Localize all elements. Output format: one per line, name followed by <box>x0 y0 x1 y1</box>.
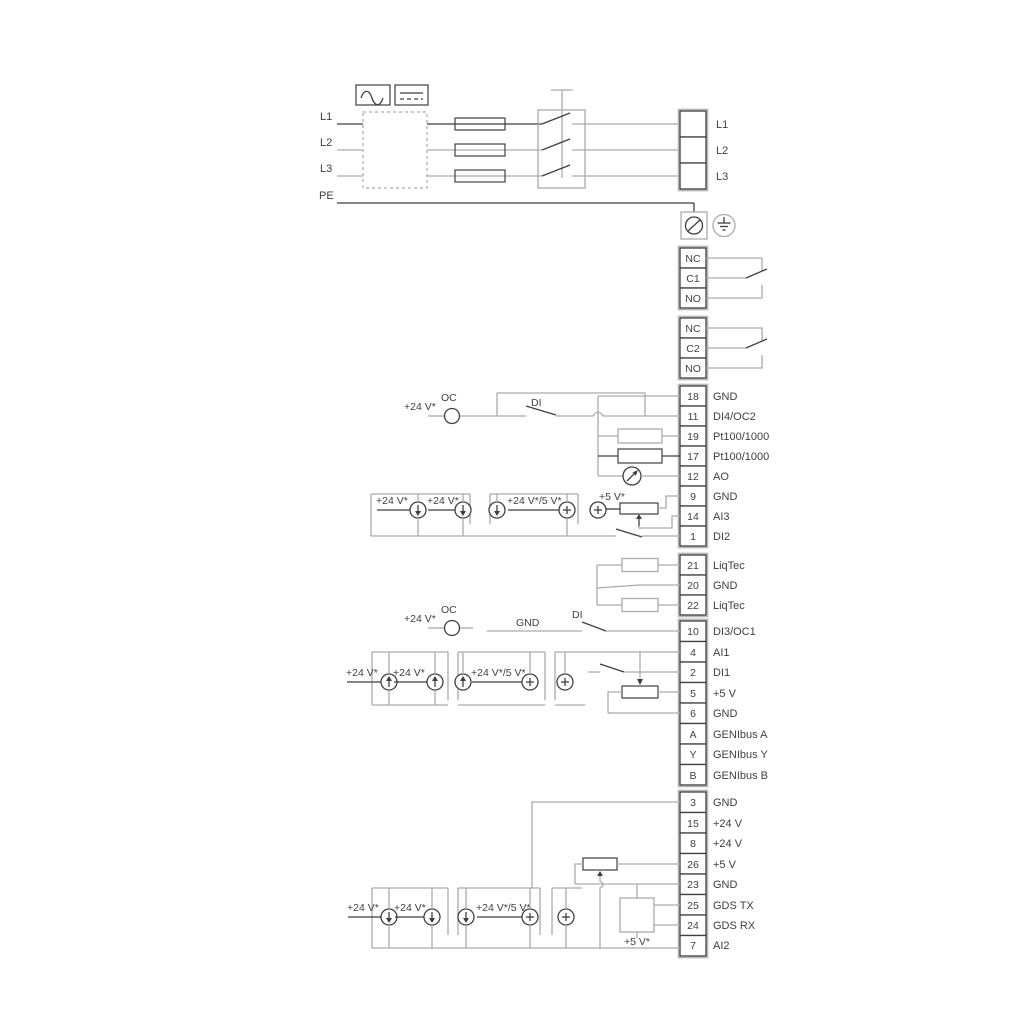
label-gds-rx: GDS RX <box>713 920 756 932</box>
current-source-symbol <box>427 674 443 690</box>
label-gnd-20: GND <box>713 580 738 592</box>
mains-terminal-block <box>679 110 708 191</box>
dc-symbol-icon <box>395 85 428 105</box>
terminal-b: B <box>689 770 696 782</box>
ac-symbol-icon <box>356 85 390 105</box>
terminal-25: 25 <box>687 900 699 912</box>
relay1-contact-blade <box>746 269 767 278</box>
label-liqtec-22: LiqTec <box>713 600 745 612</box>
pe-ground <box>337 203 735 239</box>
relay1-block: NC C1 NO <box>679 247 768 310</box>
relay2-block: NC C2 NO <box>679 317 768 380</box>
oc2-open-collector <box>445 409 460 424</box>
ai3-potentiometer <box>620 503 658 514</box>
di1-switch-blade <box>600 664 624 672</box>
current-sink-symbol <box>489 502 505 518</box>
gds-5v-label: +5 V* <box>624 936 650 948</box>
terminal-22: 22 <box>687 600 699 612</box>
terminal-3: 3 <box>690 797 696 809</box>
terminal-label-l3: L3 <box>716 171 728 183</box>
ai2-24v-label-2: +24 V* <box>394 902 426 914</box>
terminal-strip-3: 10 4 2 5 6 A Y B DI3/OC1 AI1 DI1 +5 V GN… <box>679 620 769 787</box>
label-di1: DI1 <box>713 667 730 679</box>
label-gnd-23: GND <box>713 879 738 891</box>
ai3-5v-label: +5 V* <box>599 491 625 503</box>
gds-sensor-box <box>620 898 654 932</box>
terminal-10: 10 <box>687 626 699 638</box>
pt100-sensor-19 <box>618 429 662 443</box>
label-di4-oc2: DI4/OC2 <box>713 411 756 423</box>
terminal-label-l2: L2 <box>716 145 728 157</box>
terminal-14: 14 <box>687 511 699 523</box>
oc1-di-circuit: +24 V* OC GND DI <box>404 604 680 636</box>
ao-meter-icon <box>623 467 641 485</box>
voltage-source-symbol <box>558 909 574 925</box>
terminal-18: 18 <box>687 391 699 403</box>
phase-label-pe: PE <box>319 190 334 202</box>
oc2-di-circuit: +24 V* OC DI <box>404 392 680 485</box>
voltage-source-symbol <box>522 674 538 690</box>
label-ai3: AI3 <box>713 511 730 523</box>
label-ao: AO <box>713 471 729 483</box>
ai2-potentiometer <box>583 858 617 870</box>
phase-label-l2: L2 <box>320 137 332 149</box>
main-switch <box>538 90 585 188</box>
label-pt100-17: Pt100/1000 <box>713 451 769 463</box>
ai1-potentiometer <box>622 686 658 698</box>
oc2-di-label: DI <box>531 397 542 409</box>
relay2-c2: C2 <box>686 343 700 355</box>
liqtec-sensor-1 <box>622 559 658 572</box>
terminal-12: 12 <box>687 471 699 483</box>
ai3-24v5v-label: +24 V*/5 V* <box>507 495 562 507</box>
terminal-8: 8 <box>690 838 696 850</box>
voltage-source-symbol <box>522 909 538 925</box>
wiper-arrow <box>637 679 643 685</box>
current-sink-symbol <box>410 502 426 518</box>
wiper-arrow <box>597 871 603 876</box>
terminal-17: 17 <box>687 451 699 463</box>
label-genibus-y: GENIbus Y <box>713 749 768 761</box>
converter-dashed-box <box>363 112 427 188</box>
voltage-source-symbol <box>559 502 575 518</box>
liqtec-strip: 21 20 22 LiqTec GND LiqTec <box>597 554 745 617</box>
wiring-diagram: L1 L2 L3 PE <box>0 0 1024 1024</box>
oc2-oc-label: OC <box>441 392 457 404</box>
label-genibus-b: GENIbus B <box>713 770 768 782</box>
wiper-arrow <box>636 514 642 519</box>
label-ai1: AI1 <box>713 647 730 659</box>
current-sink-symbol <box>424 909 440 925</box>
terminal-6: 6 <box>690 708 696 720</box>
label-pt100-19: Pt100/1000 <box>713 431 769 443</box>
label-gds-tx: GDS TX <box>713 900 754 912</box>
ai2-gds-circuit: +5 V* +24 V* +24 V* +24 V*/5 V* <box>347 802 680 948</box>
oc1-gnd-label: GND <box>516 617 540 629</box>
terminal-20: 20 <box>687 580 699 592</box>
screw-terminal-icon <box>681 212 707 239</box>
relay2-no: NO <box>685 363 701 375</box>
label-genibus-a: GENIbus A <box>713 729 768 741</box>
wiring-diagram-page: L1 L2 L3 PE <box>0 0 1024 1024</box>
label-gnd-9: GND <box>713 491 738 503</box>
di3-switch-blade <box>582 622 606 631</box>
oc2-24v-label: +24 V* <box>404 401 436 413</box>
ai1-24v-label-1: +24 V* <box>346 667 378 679</box>
phase-label-l3: L3 <box>320 163 332 175</box>
ai3-24v-label-2: +24 V* <box>427 495 459 507</box>
terminal-1: 1 <box>690 531 696 543</box>
terminal-label-l1: L1 <box>716 119 728 131</box>
label-liqtec-21: LiqTec <box>713 560 745 572</box>
terminal-9: 9 <box>690 491 696 503</box>
ai1-24v-label-2: +24 V* <box>393 667 425 679</box>
label-gnd-3: GND <box>713 797 738 809</box>
terminal-a: A <box>689 729 696 741</box>
current-sink-symbol <box>458 909 474 925</box>
label-gnd-18: GND <box>713 391 738 403</box>
terminal-y: Y <box>689 749 696 761</box>
phase-label-l1: L1 <box>320 111 332 123</box>
mains-section: L1 L2 L3 PE <box>319 85 735 239</box>
oc1-24v-label: +24 V* <box>404 613 436 625</box>
terminal-19: 19 <box>687 431 699 443</box>
terminal-23: 23 <box>687 879 699 891</box>
label-di2: DI2 <box>713 531 730 543</box>
ai3-24v-label-1: +24 V* <box>376 495 408 507</box>
label-5v: +5 V <box>713 688 737 700</box>
ai2-24v-label-1: +24 V* <box>347 902 379 914</box>
relay1-nc: NC <box>685 253 701 265</box>
voltage-source-symbol <box>557 674 573 690</box>
di2-switch-blade <box>616 529 642 537</box>
relay1-no: NO <box>685 293 701 305</box>
terminal-5: 5 <box>690 688 696 700</box>
terminal-strip-1: 18 11 19 17 12 9 14 1 GND DI4/OC2 Pt100/… <box>679 385 770 548</box>
terminal-2: 2 <box>690 667 696 679</box>
oc1-di-label: DI <box>572 609 583 621</box>
relay2-contact-blade <box>746 339 767 348</box>
pt100-sensor-17 <box>618 449 662 463</box>
terminal-strip-4: 3 15 8 26 23 25 24 7 GND +24 V +24 V +5 … <box>679 791 756 958</box>
relay1-c1: C1 <box>686 273 700 285</box>
oc1-oc-label: OC <box>441 604 457 616</box>
earth-icon <box>713 215 735 237</box>
relay2-nc: NC <box>685 323 701 335</box>
terminal-15: 15 <box>687 818 699 830</box>
label-gnd-6: GND <box>713 708 738 720</box>
terminal-11: 11 <box>688 411 699 423</box>
label-24v-8: +24 V <box>713 838 743 850</box>
liqtec-sensor-2 <box>622 599 658 612</box>
terminal-7: 7 <box>690 940 696 952</box>
terminal-21: 21 <box>687 560 699 572</box>
label-24v-15: +24 V <box>713 818 743 830</box>
label-di3-oc1: DI3/OC1 <box>713 626 756 638</box>
label-ai2: AI2 <box>713 940 730 952</box>
ai3-sensor-options: +24 V* +24 V* +24 V*/5 V* +5 V* <box>371 491 680 537</box>
terminal-4: 4 <box>690 647 696 659</box>
current-sink-symbol <box>455 502 471 518</box>
current-source-symbol <box>455 674 471 690</box>
ai1-24v5v-label: +24 V*/5 V* <box>471 667 526 679</box>
voltage-source-symbol <box>590 502 606 518</box>
label-5v-26: +5 V <box>713 859 737 871</box>
terminal-24: 24 <box>687 920 699 932</box>
terminal-26: 26 <box>687 859 699 871</box>
oc1-open-collector <box>445 621 460 636</box>
ai1-sensor-options: +24 V* +24 V* +24 V*/5 V* <box>346 652 680 713</box>
ai2-24v5v-label: +24 V*/5 V* <box>476 902 531 914</box>
